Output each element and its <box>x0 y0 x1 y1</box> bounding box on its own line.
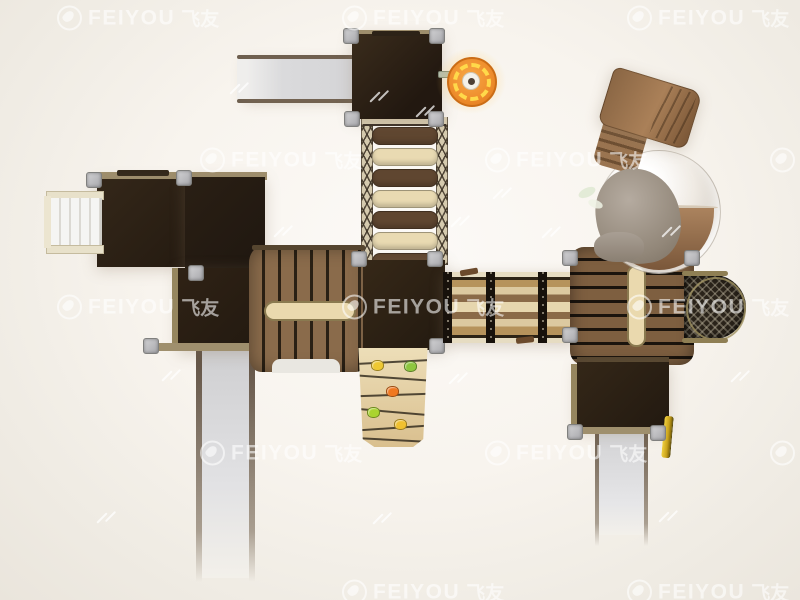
plank-walkway <box>443 272 577 343</box>
left-structure-slat <box>117 170 169 176</box>
top-platform <box>352 34 442 119</box>
watermark-dash <box>372 513 383 524</box>
brand-name-latin: FEIYOU <box>373 580 460 600</box>
brand-name-latin: FEIYOU <box>88 295 175 319</box>
corner-post <box>176 170 192 186</box>
climbing-wall-stripe <box>355 424 431 431</box>
brand-watermark: FEIYOU飞友 <box>770 147 800 174</box>
corner-post <box>650 425 666 441</box>
corner-post <box>188 265 204 281</box>
corner-post <box>567 424 583 440</box>
bottom-left-slide-rail <box>249 350 255 582</box>
brand-name-cjk: 飞友 <box>466 579 504 600</box>
stairs-rail <box>46 245 104 254</box>
roof-notch <box>272 359 340 373</box>
corner-post <box>429 28 445 44</box>
watermark-dash <box>273 226 284 237</box>
corner-post <box>143 338 159 354</box>
brand-flame-icon <box>57 6 82 31</box>
bridge-plank <box>372 127 438 145</box>
mesh-dome-rim <box>682 338 728 343</box>
brand-flame-icon <box>627 6 652 31</box>
climbing-wall <box>357 348 429 447</box>
brand-watermark: FEIYOU飞友 <box>57 5 219 32</box>
brand-watermark: FEIYOU飞友 <box>342 579 504 600</box>
climbing-wall-stripe <box>355 359 431 365</box>
brand-name-cjk: 飞友 <box>751 294 789 321</box>
watermark-dash <box>492 188 503 199</box>
corner-post <box>562 250 578 266</box>
mesh-dome-ring <box>686 277 746 341</box>
watermark-dash <box>730 371 741 382</box>
top-left-slide-end <box>237 59 246 99</box>
climbing-hold <box>394 419 407 430</box>
roof-edge-trim <box>252 245 365 250</box>
brand-name-cjk: 飞友 <box>324 440 362 467</box>
top-left-slide-surface <box>245 59 353 99</box>
bottom-right-slide-surface <box>599 432 644 535</box>
climbing-hold <box>371 360 384 371</box>
corner-post <box>427 251 443 267</box>
bridge-plank <box>372 190 438 208</box>
watermark-dash <box>448 373 459 384</box>
brand-name-latin: FEIYOU <box>516 441 603 465</box>
brand-watermark: FEIYOU飞友 <box>627 579 789 600</box>
brand-name-cjk: 飞友 <box>324 147 362 174</box>
bottom-right-platform <box>577 362 669 430</box>
corner-post <box>343 28 359 44</box>
bridge-planks <box>372 127 436 269</box>
roof-ridge-bar <box>264 301 356 321</box>
brand-flame-icon <box>770 441 795 466</box>
climbing-hold <box>367 407 380 418</box>
brand-flame-icon <box>57 295 82 320</box>
bridge-plank <box>372 169 438 187</box>
spinner-axle <box>468 78 475 85</box>
brand-flame-icon <box>485 441 510 466</box>
bottom-right-platform-trim <box>571 364 577 430</box>
brand-name-cjk: 飞友 <box>181 5 219 32</box>
brand-name-cjk: 飞友 <box>466 5 504 32</box>
brand-name-latin: FEIYOU <box>88 6 175 30</box>
brand-name-latin: FEIYOU <box>516 148 603 172</box>
brand-watermark: FEIYOU飞友 <box>342 5 504 32</box>
climbing-wall-stripe <box>355 374 431 381</box>
brand-watermark: FEIYOU飞友 <box>770 440 800 467</box>
bridge-plank <box>372 148 438 166</box>
corner-post <box>428 111 444 127</box>
brand-name-latin: FEIYOU <box>658 580 745 600</box>
tube-elbow-lip <box>594 232 644 262</box>
corner-post <box>562 327 578 343</box>
walkway-bar <box>486 272 495 343</box>
stairs-end <box>44 196 51 248</box>
brand-flame-icon <box>342 580 367 600</box>
watermark-dash <box>658 511 669 522</box>
climbing-hold <box>386 386 399 397</box>
climbing-wall-stripe <box>355 437 431 443</box>
brand-name-latin: FEIYOU <box>231 148 318 172</box>
watermark-dash <box>541 227 552 238</box>
corner-post <box>344 111 360 127</box>
tube-entrance-ribs <box>649 85 697 146</box>
center-platform <box>363 260 445 350</box>
steering-wheel-spinner <box>447 57 497 107</box>
brand-flame-icon <box>770 148 795 173</box>
brand-name-latin: FEIYOU <box>658 6 745 30</box>
brand-name-cjk: 飞友 <box>751 579 789 600</box>
brand-name-latin: FEIYOU <box>373 6 460 30</box>
brand-flame-icon <box>342 6 367 31</box>
bridge-plank <box>372 211 438 229</box>
entry-stairs <box>51 198 102 245</box>
walkway-bar <box>443 272 452 343</box>
leaf-decor <box>577 185 597 201</box>
bottom-right-slide-rail <box>644 432 648 546</box>
brand-name-cjk: 飞友 <box>751 5 789 32</box>
left-platform-edge-trim <box>172 268 178 351</box>
climbing-hold <box>404 361 417 372</box>
bottom-left-slide-surface <box>202 350 249 578</box>
left-platform-a <box>97 179 185 267</box>
walkway-bar <box>538 272 547 343</box>
brand-flame-icon <box>485 148 510 173</box>
mesh-dome-rim <box>682 271 728 276</box>
watermark-dash <box>450 216 461 227</box>
corner-post <box>684 250 700 266</box>
right-roof-ridge-bar <box>627 265 646 347</box>
corner-post <box>86 172 102 188</box>
brand-flame-icon <box>627 580 652 600</box>
brand-watermark: FEIYOU飞友 <box>627 5 789 32</box>
brand-flame-icon <box>200 148 225 173</box>
watermark-dash <box>96 512 107 523</box>
bridge-plank <box>372 232 438 250</box>
playground-render: FEIYOU飞友FEIYOU飞友FEIYOU飞友FEIYOU飞友FEIYOU飞友… <box>0 0 800 600</box>
brand-watermark: FEIYOU飞友 <box>200 147 362 174</box>
corner-post <box>351 251 367 267</box>
watermark-dash <box>161 370 172 381</box>
top-platform-slat <box>372 31 420 36</box>
top-left-slide-rail <box>237 99 354 103</box>
